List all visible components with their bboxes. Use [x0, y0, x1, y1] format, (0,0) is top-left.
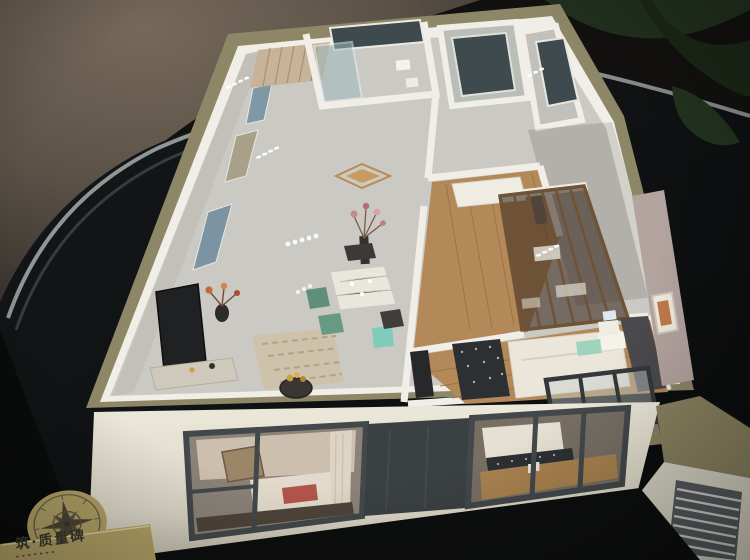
- dining-chair-green: [318, 313, 344, 335]
- pink-flowers: [350, 210, 357, 217]
- tableware: [368, 279, 372, 283]
- tableware: [360, 292, 364, 296]
- toilet-fixture: [406, 77, 419, 87]
- curtain: [330, 430, 352, 512]
- orange-flowers: [205, 286, 212, 293]
- solid-panel: [364, 418, 470, 516]
- facade-window-left: [186, 424, 366, 538]
- orange-flowers: [234, 290, 240, 296]
- marble-dining-table: [330, 266, 396, 310]
- nightstand: [598, 320, 620, 336]
- dark-rug: [452, 339, 510, 400]
- pink-flowers: [374, 209, 381, 216]
- teal-armchair: [372, 326, 394, 348]
- console-decor: [189, 367, 194, 372]
- pink-flowers: [380, 220, 386, 226]
- dining-chair-dark: [344, 243, 376, 261]
- flower-vase: [215, 304, 229, 322]
- photo-apartment-model: 筑·质量碑: [0, 0, 750, 560]
- pink-flowers: [363, 203, 369, 209]
- study-chair: [522, 297, 541, 309]
- gold-flowers: [294, 372, 300, 378]
- coffee-table: [280, 378, 312, 398]
- facade-dark-panel: [364, 418, 470, 516]
- utility-room-window: [452, 33, 515, 96]
- glowing-phone: [603, 310, 617, 321]
- gold-flowers: [300, 376, 306, 382]
- green-throw-pillow: [576, 339, 602, 356]
- bottles: [536, 462, 539, 471]
- console-bowl: [209, 363, 215, 369]
- tv-screen: [156, 284, 206, 370]
- orange-flowers: [221, 283, 227, 289]
- tableware: [350, 282, 354, 286]
- sink-fixture: [396, 59, 411, 70]
- gold-flowers: [287, 375, 294, 382]
- dining-chair-dark: [380, 309, 404, 329]
- dining-chair-green: [306, 287, 330, 309]
